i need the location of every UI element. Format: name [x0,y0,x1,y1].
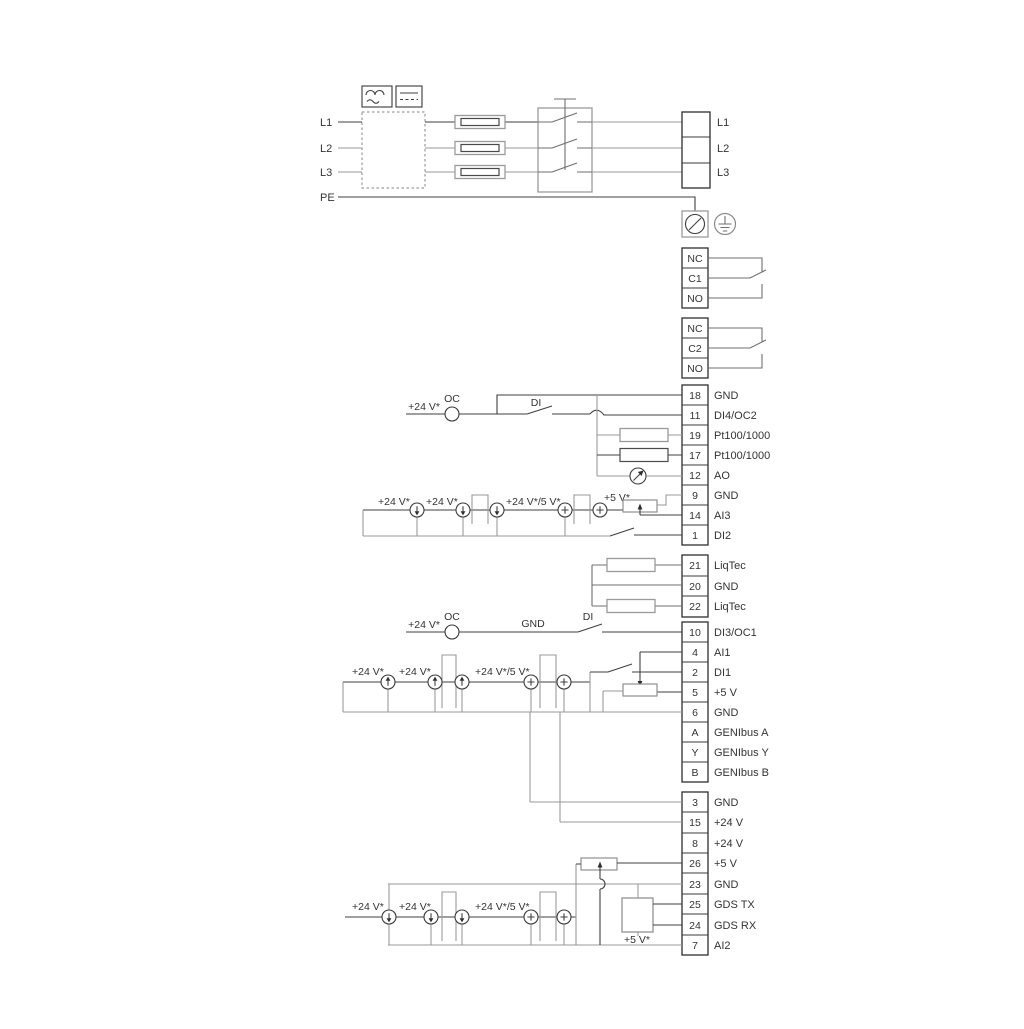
mains-label-l1-right: L1 [717,117,729,129]
liqtec-terminal-strip: 21 20 22 LiqTec GND LiqTec [682,555,746,617]
current-source-icon [381,675,395,689]
mains-label-l2-right: L2 [717,143,729,155]
terminal-number: Y [691,747,698,759]
io-terminal-strip-1: 18 11 19 17 12 9 14 1 GND DI4/OC2 Pt100/… [682,385,770,545]
terminal-number: 7 [692,940,698,952]
pt100-resistor-icon [620,449,668,462]
terminal-label: GND [714,797,739,809]
gds-sensor: +5 V* [622,898,682,946]
mains-terminal-block: L1 L2 L3 [682,112,729,188]
terminal-number: 6 [692,707,698,719]
fuses [455,116,505,179]
terminal-label: GND [714,707,739,719]
terminal-label: +5 V [714,687,738,699]
fuse-l1-inner [461,119,499,126]
relay-1: NC C1 NO [682,248,766,308]
supply-link-wires [530,712,682,822]
io-terminal-strip-3: 3 15 8 26 23 25 24 7 GND +24 V +24 V +5 … [682,792,757,955]
relay1-terminal-nc: NC [687,253,703,265]
terminal-label: AI1 [714,647,731,659]
oc-node-icon [445,407,459,421]
v24v5-label: +24 V*/5 V* [506,496,561,508]
current-source-icon [428,675,442,689]
terminal-number: B [691,767,698,779]
terminal-label: GENIbus B [714,767,769,779]
di-label: DI [583,611,594,623]
terminal-label: GND [714,390,739,402]
oc-label: OC [444,611,460,623]
terminal-number: 12 [689,470,701,482]
v24-label: +24 V* [378,496,410,508]
terminal-number: 23 [689,879,701,891]
current-source-icon [424,910,438,924]
terminal-number: 4 [692,647,698,659]
di2-switch-blade [610,528,682,536]
plus-source-icon [557,675,571,689]
plus-source-icon [558,503,572,517]
terminal-number: 9 [692,490,698,502]
terminal-number: 22 [689,601,701,613]
terminal-number: 18 [689,390,701,402]
v24-label: +24 V* [352,901,384,913]
terminal-label: AI2 [714,940,731,952]
v24-label: +24 V* [399,901,431,913]
relay1-terminal-c1: C1 [688,273,702,285]
terminal-number: 15 [689,817,701,829]
v24-label: +24 V* [426,496,458,508]
fuse-l2-inner [461,145,499,152]
fuse-l3-inner [461,169,499,176]
relay2-terminal-nc: NC [687,323,703,335]
di3-circuit: +24 V* OC GND DI [406,611,682,639]
terminal-number: 8 [692,838,698,850]
terminal-label: +24 V [714,838,744,850]
terminal-number: 25 [689,899,701,911]
terminal-number: 19 [689,430,701,442]
terminal-label: AO [714,470,730,482]
plus-source-icon [593,503,607,517]
terminal-number: 3 [692,797,698,809]
terminal-number: 1 [692,530,698,542]
mains-label-pe-left: PE [320,192,335,204]
liqtec-sensor-icon [607,600,655,613]
v24-label: +24 V* [399,666,431,678]
relay1-contact-wires [708,258,766,298]
mains-label-l1-left: L1 [320,117,332,129]
current-source-icon [455,675,469,689]
io-terminal-strip-2: 10 4 2 5 6 A Y B DI3/OC1 AI1 DI1 +5 V GN… [682,622,769,782]
ac-symbol-icon [362,86,392,107]
mains-section: L1 L2 L3 PE [320,86,736,237]
terminal-label: GDS RX [714,920,757,932]
v24v5-label: +24 V*/5 V* [475,666,530,678]
oc-label: OC [444,393,460,405]
relay1-terminal-no: NO [687,293,703,305]
terminal-number: 20 [689,581,701,593]
terminal-label: LiqTec [714,560,746,572]
current-source-icon [490,503,504,517]
terminal-number: 10 [689,627,701,639]
terminal-label: GND [714,581,739,593]
terminal-label: GENIbus A [714,727,769,739]
pt100-ao-circuit [597,429,682,485]
wiring-diagram: L1 L2 L3 PE [0,0,1024,1024]
relay2-terminal-no: NO [687,363,703,375]
mains-label-l3-right: L3 [717,167,729,179]
wiring-diagram-page: L1 L2 L3 PE [0,0,1024,1024]
relay-2: NC C2 NO [682,318,766,378]
terminal-number: 2 [692,667,698,679]
relay2-contact-wires [708,328,766,368]
v24-label: +24 V* [352,666,384,678]
terminal-label: DI1 [714,667,731,679]
di-label: DI [531,397,542,409]
plus-source-icon [557,910,571,924]
potentiometer-icon [623,684,657,696]
terminal-number: 21 [689,560,701,572]
liqtec-sensor-icon [607,559,655,572]
terminal-label: GENIbus Y [714,747,769,759]
terminal-label: Pt100/1000 [714,430,770,442]
oc-node-icon [445,625,459,639]
gds-sensor-box [622,898,653,932]
mains-wires-gray [338,122,682,172]
mains-label-l3-left: L3 [320,167,332,179]
terminal-number: A [691,727,698,739]
terminal-label: Pt100/1000 [714,450,770,462]
pe-ground-section [682,211,736,237]
main-switch-contacts [538,99,592,172]
terminal-label: GDS TX [714,899,755,911]
main-switch [538,99,592,192]
plus-source-icon [524,675,538,689]
current-source-icon [382,910,396,924]
terminal-number: 11 [690,410,701,422]
dc-symbol-icon [396,86,422,107]
relay2-terminal-c2: C2 [688,343,702,355]
gnd-label: GND [521,618,545,630]
di4-box [497,395,682,414]
mains-wires-dark [338,122,695,211]
gds-wires [653,904,682,925]
analog-circuit-ai1: +24 V* +24 V* +24 V*/5 V* [343,652,682,712]
analog-circuit-ai3: +24 V* +24 V* +24 V*/5 V* +5 V* [363,492,682,536]
current-source-icon [456,503,470,517]
rfi-filter-box [362,112,425,188]
terminal-number: 24 [689,920,701,932]
terminal-label: DI4/OC2 [714,410,757,422]
plus-source-icon [524,910,538,924]
terminal-label: LiqTec [714,601,746,613]
terminal-number: 26 [689,858,701,870]
terminal-label: +24 V [714,817,744,829]
terminal-label: +5 V [714,858,738,870]
v5-label: +5 V* [624,934,650,946]
v24-label: +24 V* [408,401,440,413]
terminal-number: 17 [689,450,701,462]
current-source-icon [410,503,424,517]
current-source-icon [455,910,469,924]
v24v5-label: +24 V*/5 V* [475,901,530,913]
terminal-number: 14 [689,510,701,522]
analog-circuit-ai2: +24 V* +24 V* +24 V*/5 V* +5 V* [345,858,682,946]
mains-block-outline [682,112,710,188]
pt100-resistor-icon [620,429,668,442]
ac-dc-converter [362,86,422,107]
mains-label-l2-left: L2 [320,143,332,155]
liqtec-circuit [592,559,682,613]
terminal-label: DI3/OC1 [714,627,757,639]
terminal-label: AI3 [714,510,731,522]
terminal-label: GND [714,879,739,891]
terminal-number: 5 [692,687,698,699]
terminal-label: DI2 [714,530,731,542]
terminal-label: GND [714,490,739,502]
v24-label: +24 V* [408,619,440,631]
